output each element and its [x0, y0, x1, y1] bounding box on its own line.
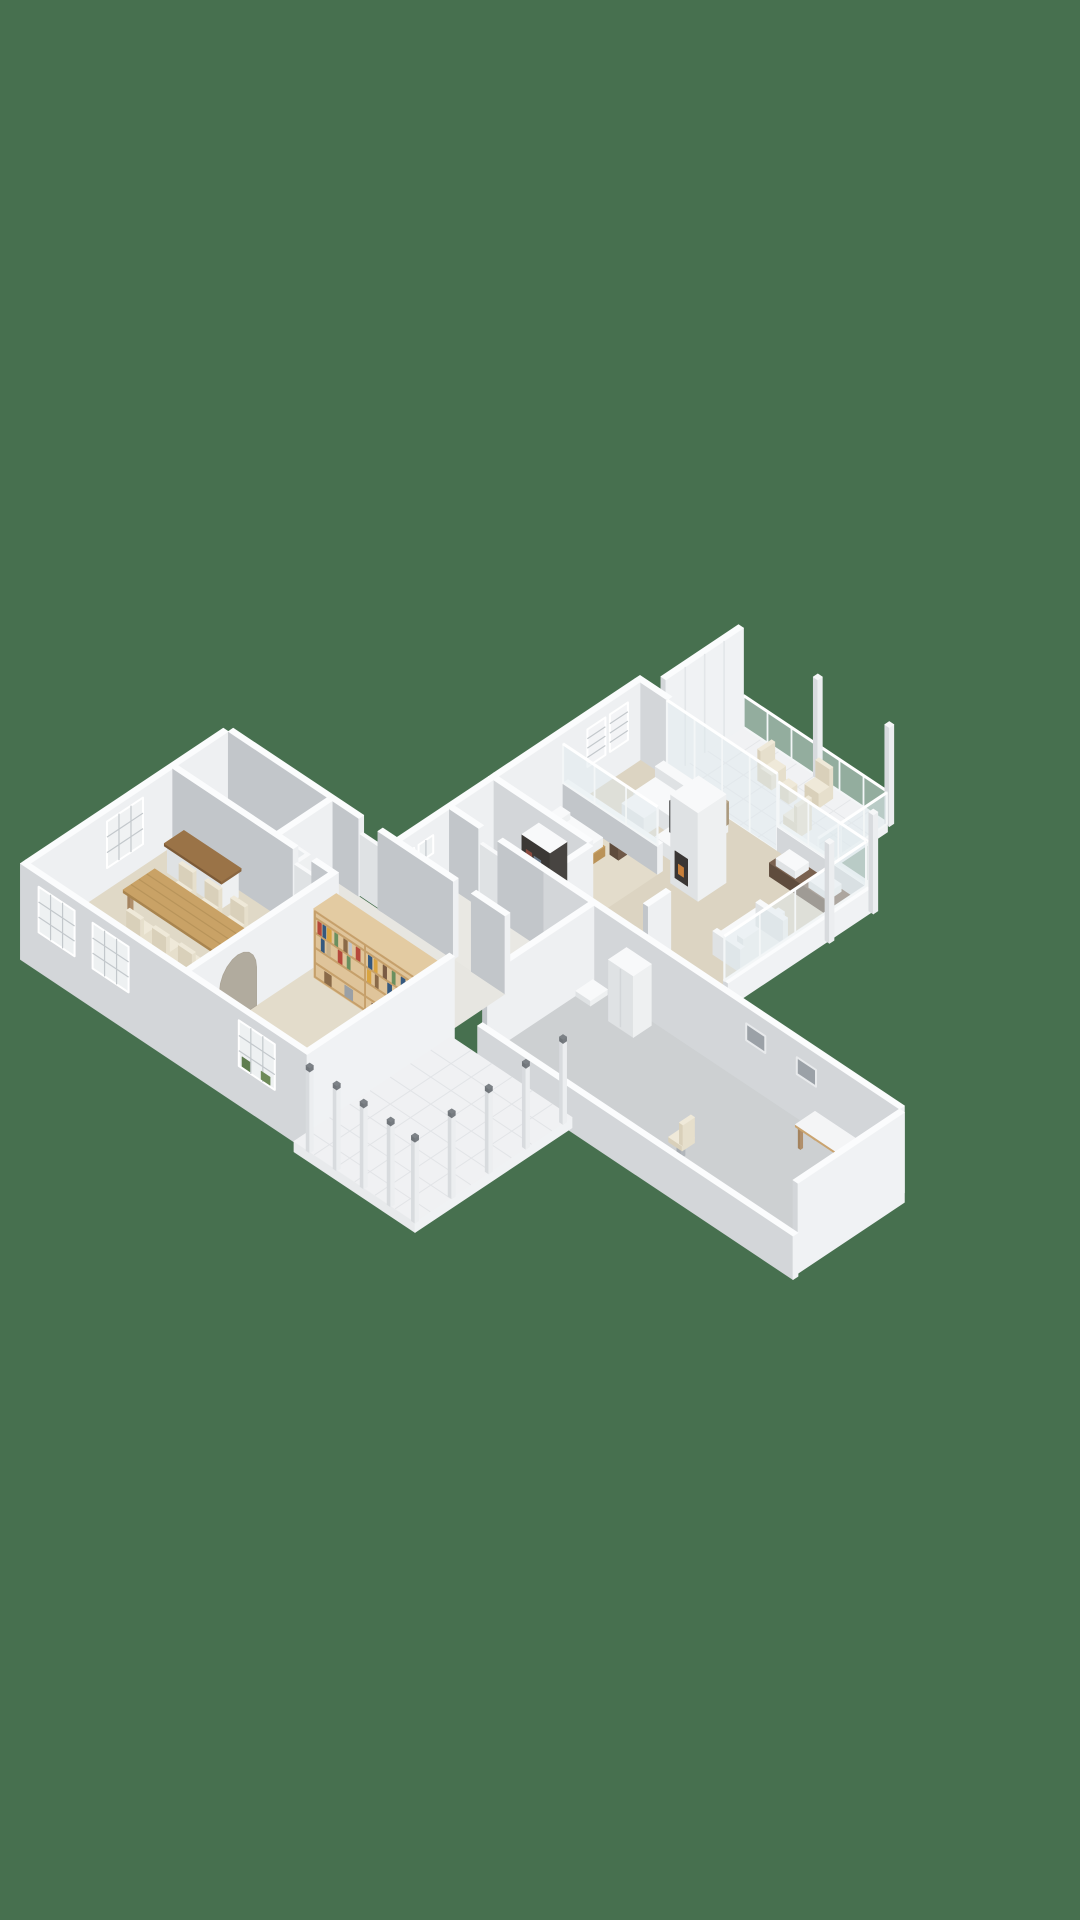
- fireplace-block: [671, 776, 726, 901]
- bookshelf-divider: [364, 944, 365, 1010]
- terrace-post-s1: [306, 1063, 313, 1153]
- terrace-post-e2: [522, 1059, 529, 1149]
- terrace-post-s3: [360, 1099, 367, 1189]
- terrace-post-s4: [387, 1117, 394, 1207]
- cabinet-seam: [620, 969, 621, 1027]
- terrace-post-e3: [485, 1084, 492, 1174]
- terrace-post-e4: [448, 1109, 455, 1199]
- terrace-post-e1: [560, 1035, 567, 1125]
- terrace-post-s5: [411, 1133, 418, 1223]
- floorplan-3d-view[interactable]: [0, 0, 1080, 1920]
- corner-pillar-2: [825, 838, 834, 943]
- corner-pillar-1: [869, 809, 878, 914]
- terrace-post-s2: [333, 1081, 340, 1171]
- canvas-background: [0, 0, 1080, 1920]
- garage-cabinet: [609, 948, 652, 1038]
